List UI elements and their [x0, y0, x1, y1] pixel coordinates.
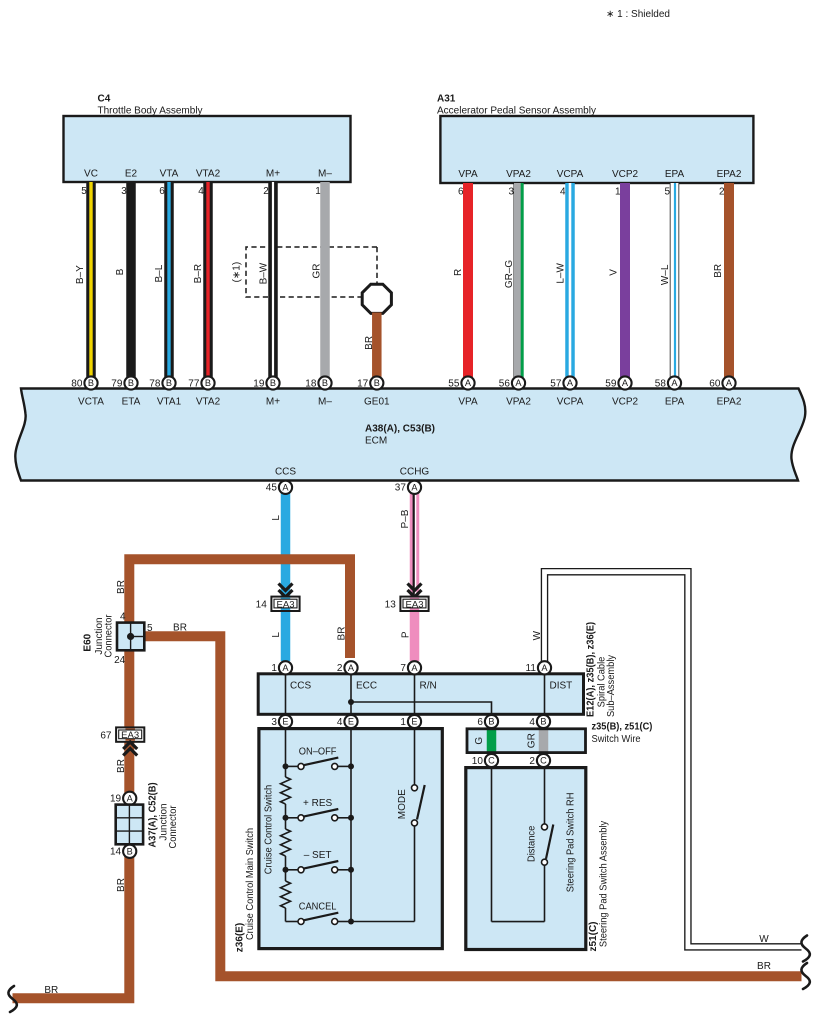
svg-text:M–: M–	[318, 397, 332, 408]
svg-text:E: E	[282, 717, 288, 727]
svg-text:14: 14	[110, 847, 122, 858]
svg-text:80: 80	[71, 378, 83, 389]
svg-text:BR: BR	[44, 985, 58, 996]
svg-text:z35(B), z51(C): z35(B), z51(C)	[592, 721, 653, 732]
svg-text:EA3: EA3	[121, 729, 139, 740]
svg-text:R/N: R/N	[420, 681, 437, 692]
svg-text:VCTA: VCTA	[78, 397, 104, 408]
svg-text:B: B	[115, 268, 126, 275]
svg-text:Steering Pad Switch RH: Steering Pad Switch RH	[566, 793, 577, 893]
svg-text:A38(A), C53(B): A38(A), C53(B)	[365, 424, 435, 435]
svg-text:B–R: B–R	[193, 264, 204, 283]
svg-text:14: 14	[256, 600, 268, 611]
svg-text:Connector: Connector	[104, 614, 115, 658]
svg-text:VTA1: VTA1	[157, 397, 182, 408]
svg-text:10: 10	[472, 756, 484, 767]
svg-text:∗ 1 : Shielded: ∗ 1 : Shielded	[606, 9, 670, 20]
svg-text:BR: BR	[173, 623, 187, 634]
svg-text:1: 1	[400, 717, 406, 728]
svg-text:78: 78	[149, 378, 161, 389]
svg-text:P–B: P–B	[400, 509, 411, 528]
svg-text:VPA: VPA	[458, 397, 478, 408]
svg-text:GE01: GE01	[364, 397, 390, 408]
svg-text:7: 7	[400, 663, 406, 674]
svg-text:A: A	[515, 378, 522, 388]
svg-text:4: 4	[120, 612, 126, 623]
svg-text:4: 4	[560, 187, 566, 198]
svg-text:VC: VC	[84, 169, 98, 180]
svg-text:B: B	[88, 378, 94, 388]
svg-text:+ RES: + RES	[303, 798, 333, 809]
svg-text:B: B	[322, 378, 328, 388]
svg-text:3: 3	[271, 717, 277, 728]
svg-text:B–L: B–L	[154, 264, 165, 282]
svg-text:4: 4	[529, 717, 535, 728]
svg-text:E: E	[348, 717, 354, 727]
svg-text:EPA: EPA	[665, 397, 685, 408]
svg-text:VPA2: VPA2	[506, 397, 531, 408]
svg-text:13: 13	[385, 600, 397, 611]
svg-text:A: A	[622, 378, 629, 388]
svg-text:19: 19	[253, 378, 265, 389]
svg-text:B: B	[540, 717, 546, 727]
svg-text:BR: BR	[757, 961, 771, 972]
svg-text:B: B	[166, 378, 172, 388]
svg-text:A: A	[282, 663, 289, 673]
svg-text:77: 77	[188, 378, 200, 389]
svg-text:A31: A31	[437, 94, 456, 105]
svg-text:G: G	[474, 737, 485, 745]
svg-text:B: B	[488, 717, 494, 727]
svg-text:GR: GR	[527, 733, 538, 748]
svg-text:E2: E2	[125, 169, 138, 180]
svg-text:E: E	[411, 717, 417, 727]
svg-text:18: 18	[305, 378, 317, 389]
svg-text:W: W	[532, 630, 543, 640]
svg-text:M+: M+	[266, 397, 280, 408]
svg-text:C: C	[540, 756, 547, 766]
svg-text:E60: E60	[83, 633, 94, 651]
svg-text:37: 37	[395, 483, 407, 494]
svg-text:B: B	[127, 846, 133, 856]
svg-text:CCS: CCS	[290, 681, 311, 692]
svg-text:A: A	[567, 378, 574, 388]
svg-text:BR: BR	[336, 627, 347, 641]
svg-text:BR: BR	[116, 878, 127, 892]
svg-text:6: 6	[477, 717, 483, 728]
svg-text:Switch Wire: Switch Wire	[592, 734, 641, 745]
svg-text:DIST: DIST	[550, 681, 573, 692]
svg-text:GR: GR	[311, 264, 322, 279]
svg-text:60: 60	[709, 378, 721, 389]
svg-text:1: 1	[271, 663, 277, 674]
svg-text:Steering Pad Switch Assembly: Steering Pad Switch Assembly	[599, 821, 610, 947]
svg-text:BR: BR	[116, 759, 127, 773]
svg-text:MODE: MODE	[397, 789, 408, 819]
svg-text:79: 79	[111, 378, 123, 389]
svg-text:M–: M–	[318, 169, 332, 180]
svg-text:C4: C4	[98, 94, 111, 105]
svg-text:A: A	[671, 378, 678, 388]
svg-text:56: 56	[499, 378, 511, 389]
svg-text:C: C	[488, 756, 495, 766]
svg-text:W–L: W–L	[660, 264, 671, 285]
svg-text:A: A	[465, 378, 472, 388]
svg-text:24: 24	[114, 655, 126, 666]
svg-text:A: A	[541, 663, 548, 673]
svg-text:VCP2: VCP2	[612, 397, 639, 408]
svg-text:17: 17	[357, 378, 369, 389]
svg-text:(∗1): (∗1)	[232, 262, 243, 283]
svg-text:Cruise Control Switch: Cruise Control Switch	[264, 785, 275, 875]
svg-text:E12(A), z35(B), z36(E): E12(A), z35(B), z36(E)	[585, 622, 596, 717]
svg-text:– SET: – SET	[304, 850, 332, 861]
svg-text:11: 11	[526, 663, 537, 674]
svg-text:EPA2: EPA2	[717, 169, 742, 180]
svg-text:A: A	[411, 482, 418, 492]
svg-text:EPA: EPA	[665, 169, 685, 180]
svg-text:ECC: ECC	[356, 681, 377, 692]
svg-text:VTA: VTA	[160, 169, 179, 180]
svg-text:B–Y: B–Y	[75, 265, 86, 284]
svg-text:67: 67	[100, 730, 112, 741]
svg-text:P: P	[400, 631, 411, 638]
svg-text:CCS: CCS	[275, 467, 296, 478]
svg-text:B: B	[205, 378, 211, 388]
svg-text:59: 59	[605, 378, 617, 389]
svg-text:L: L	[271, 515, 282, 521]
svg-text:L: L	[271, 632, 282, 638]
svg-text:BR: BR	[713, 264, 724, 278]
svg-text:ECM: ECM	[365, 436, 387, 447]
svg-text:B: B	[270, 378, 276, 388]
svg-text:A: A	[726, 378, 733, 388]
svg-text:BR: BR	[116, 580, 127, 594]
svg-text:B: B	[128, 378, 134, 388]
svg-text:A: A	[348, 663, 355, 673]
svg-text:GR–G: GR–G	[504, 260, 515, 289]
svg-text:EA3: EA3	[277, 598, 295, 609]
svg-text:CANCEL: CANCEL	[299, 902, 337, 913]
svg-text:5: 5	[147, 623, 153, 634]
svg-text:W: W	[759, 934, 769, 945]
svg-text:L–W: L–W	[556, 263, 567, 284]
svg-text:VTA2: VTA2	[196, 397, 221, 408]
svg-text:Distance: Distance	[527, 825, 538, 862]
svg-text:CCHG: CCHG	[400, 467, 430, 478]
svg-text:V: V	[609, 269, 620, 276]
svg-text:VPA: VPA	[458, 169, 478, 180]
svg-text:A: A	[282, 482, 289, 492]
svg-text:VCPA: VCPA	[557, 169, 584, 180]
svg-text:M+: M+	[266, 169, 280, 180]
svg-text:Sub–Assembly: Sub–Assembly	[606, 655, 617, 717]
svg-text:A37(A), C52(B): A37(A), C52(B)	[148, 782, 159, 847]
svg-text:5: 5	[664, 187, 670, 198]
svg-text:2: 2	[529, 756, 535, 767]
svg-text:VPA2: VPA2	[506, 169, 531, 180]
svg-text:Cruise Control Main Switch: Cruise Control Main Switch	[245, 828, 256, 940]
svg-text:B–W: B–W	[258, 262, 269, 284]
svg-text:VCP2: VCP2	[612, 169, 639, 180]
svg-text:EPA2: EPA2	[717, 397, 742, 408]
svg-text:45: 45	[266, 483, 278, 494]
svg-text:BR: BR	[364, 336, 375, 350]
svg-text:19: 19	[110, 794, 122, 805]
svg-text:ON–OFF: ON–OFF	[299, 746, 337, 757]
svg-text:58: 58	[655, 378, 667, 389]
svg-text:R: R	[453, 269, 464, 276]
svg-text:A: A	[127, 793, 134, 803]
svg-text:A: A	[411, 663, 418, 673]
svg-text:VCPA: VCPA	[557, 397, 584, 408]
svg-text:4: 4	[337, 717, 343, 728]
svg-text:57: 57	[550, 378, 562, 389]
svg-text:VTA2: VTA2	[196, 169, 221, 180]
svg-text:EA3: EA3	[406, 598, 424, 609]
svg-text:z36(E): z36(E)	[235, 923, 246, 952]
svg-text:B: B	[374, 378, 380, 388]
svg-text:Connector: Connector	[168, 805, 179, 849]
svg-text:ETA: ETA	[122, 397, 141, 408]
svg-text:55: 55	[448, 378, 460, 389]
svg-text:2: 2	[337, 663, 343, 674]
